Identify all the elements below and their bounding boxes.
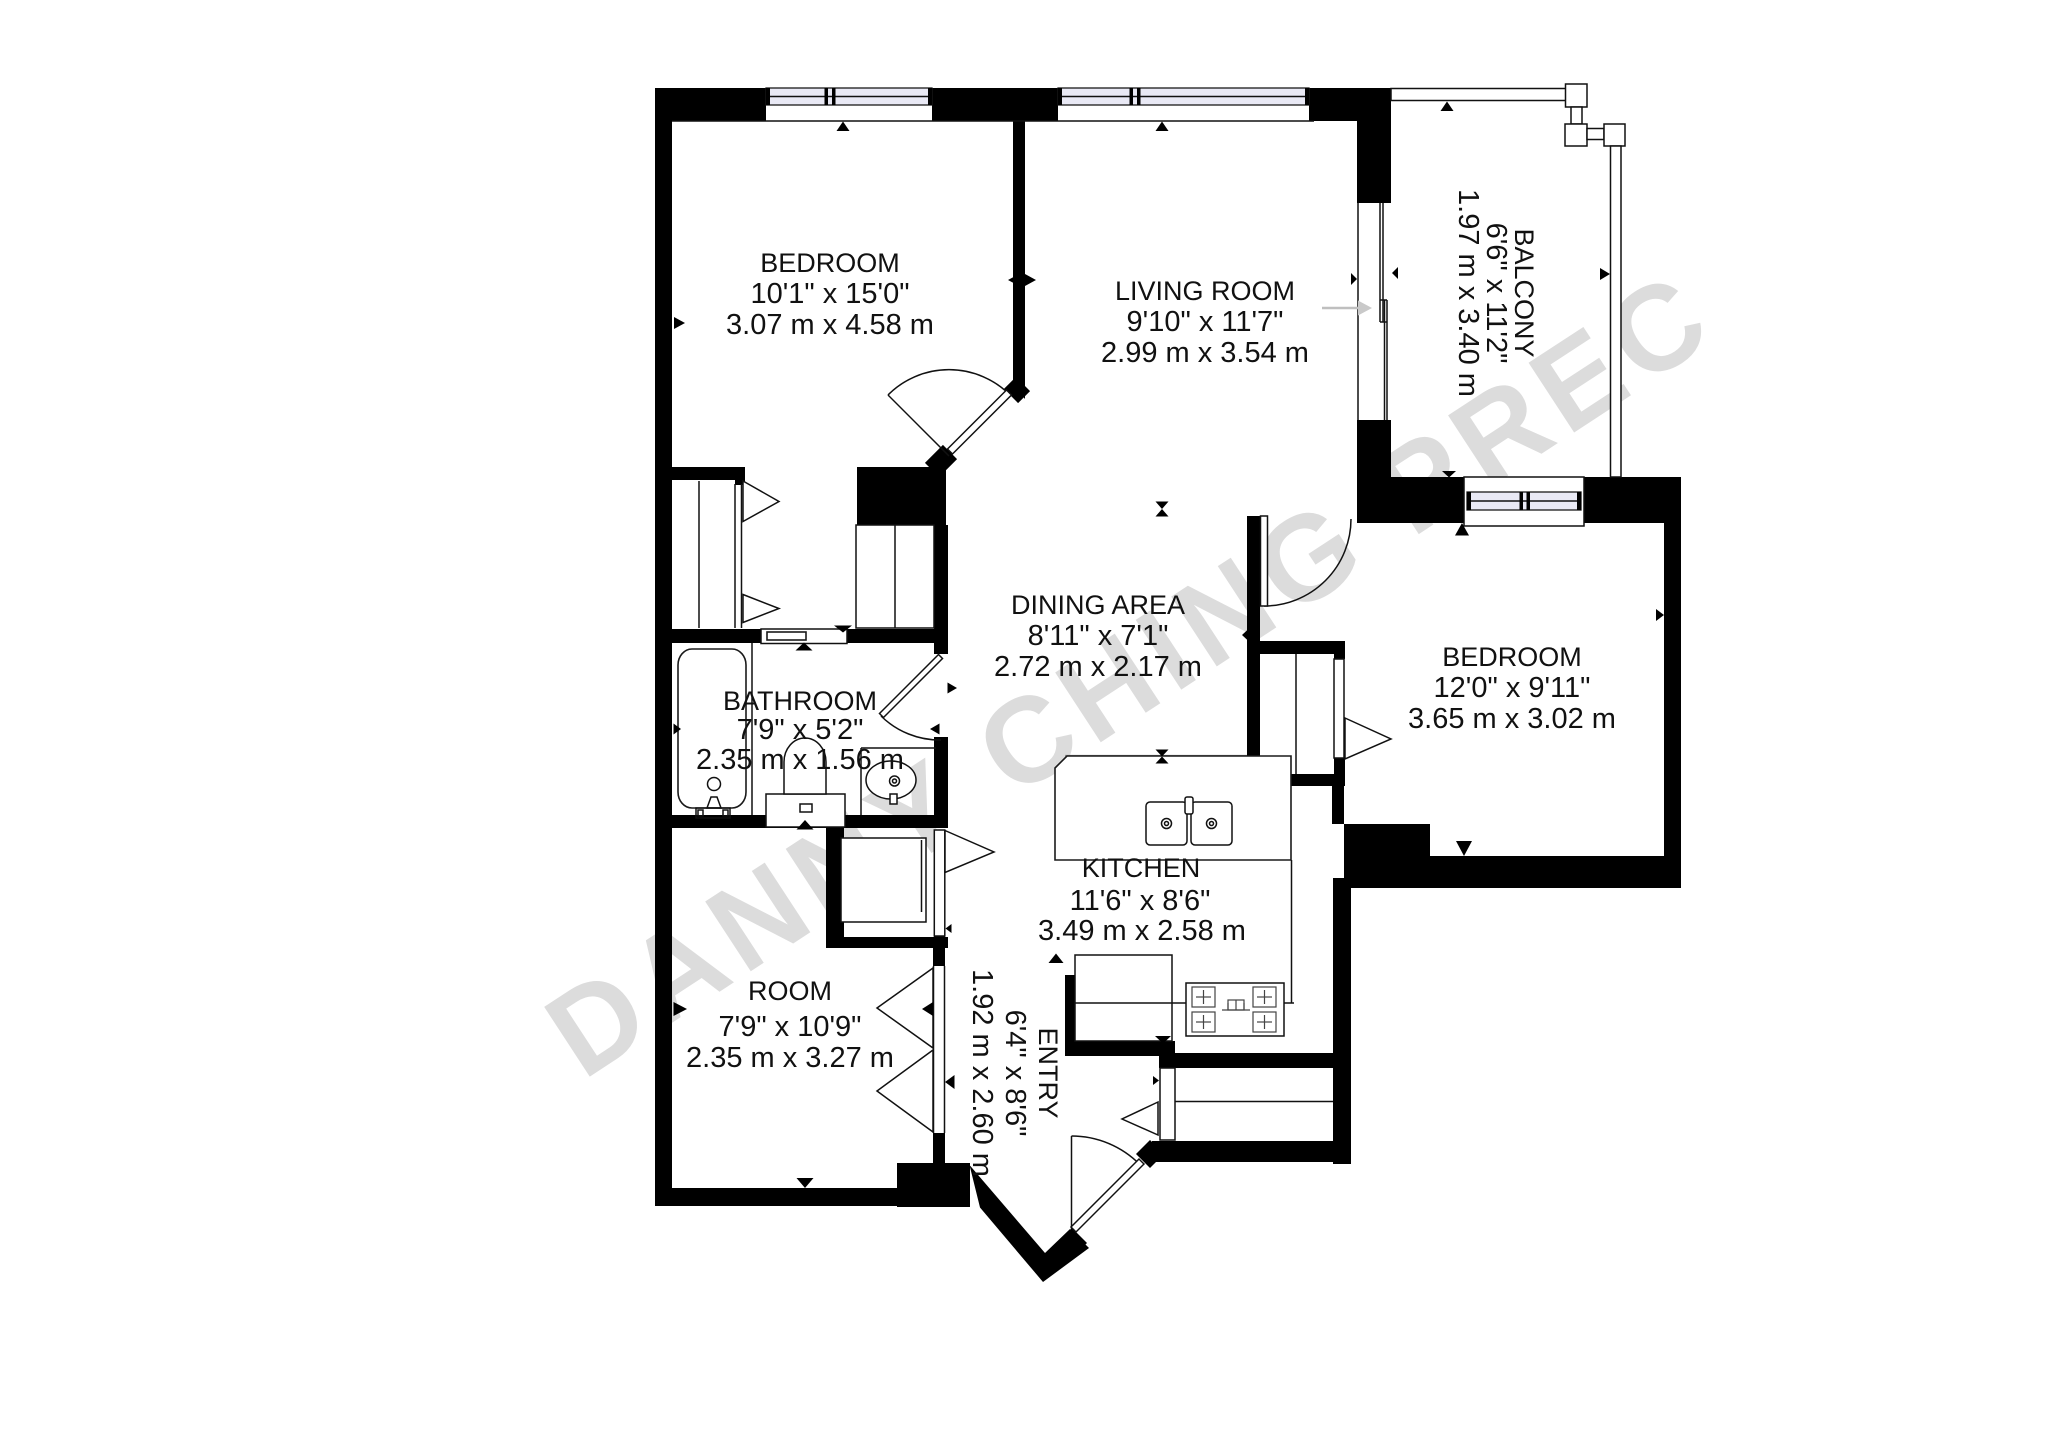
svg-text:9'10" x 11'7": 9'10" x 11'7" xyxy=(1127,306,1284,338)
svg-text:8'11" x 7'1": 8'11" x 7'1" xyxy=(1028,620,1169,652)
svg-text:2.35 m x 3.27 m: 2.35 m x 3.27 m xyxy=(686,1042,894,1074)
svg-text:12'0" x 9'11": 12'0" x 9'11" xyxy=(1434,672,1591,704)
svg-text:1.97 m x 3.40 m: 1.97 m x 3.40 m xyxy=(1452,189,1484,397)
svg-text:ENTRY: ENTRY xyxy=(1033,1027,1063,1118)
svg-text:6'4" x 8'6": 6'4" x 8'6" xyxy=(999,1010,1031,1137)
svg-text:7'9" x 10'9": 7'9" x 10'9" xyxy=(719,1011,862,1043)
svg-text:ROOM: ROOM xyxy=(748,976,832,1006)
svg-text:BALCONY: BALCONY xyxy=(1509,228,1539,357)
svg-text:BEDROOM: BEDROOM xyxy=(760,248,900,278)
svg-text:LIVING ROOM: LIVING ROOM xyxy=(1115,276,1295,306)
svg-text:DINING AREA: DINING AREA xyxy=(1011,590,1185,620)
svg-text:BATHROOM: BATHROOM xyxy=(723,686,877,716)
svg-text:1.92 m x 2.60 m: 1.92 m x 2.60 m xyxy=(966,969,998,1177)
svg-text:7'9" x 5'2": 7'9" x 5'2" xyxy=(737,714,864,746)
svg-text:2.35 m x 1.56 m: 2.35 m x 1.56 m xyxy=(696,744,904,776)
svg-text:2.72 m x 2.17 m: 2.72 m x 2.17 m xyxy=(994,651,1202,683)
svg-text:3.49 m x 2.58 m: 3.49 m x 2.58 m xyxy=(1038,915,1246,947)
svg-text:3.07 m x 4.58 m: 3.07 m x 4.58 m xyxy=(726,309,934,341)
svg-text:10'1" x 15'0": 10'1" x 15'0" xyxy=(750,278,909,310)
svg-text:KITCHEN: KITCHEN xyxy=(1082,853,1201,883)
svg-text:2.99 m x 3.54 m: 2.99 m x 3.54 m xyxy=(1101,337,1309,369)
svg-text:BEDROOM: BEDROOM xyxy=(1442,642,1582,672)
svg-text:11'6" x 8'6": 11'6" x 8'6" xyxy=(1070,885,1211,917)
svg-text:3.65 m x 3.02 m: 3.65 m x 3.02 m xyxy=(1408,703,1616,735)
